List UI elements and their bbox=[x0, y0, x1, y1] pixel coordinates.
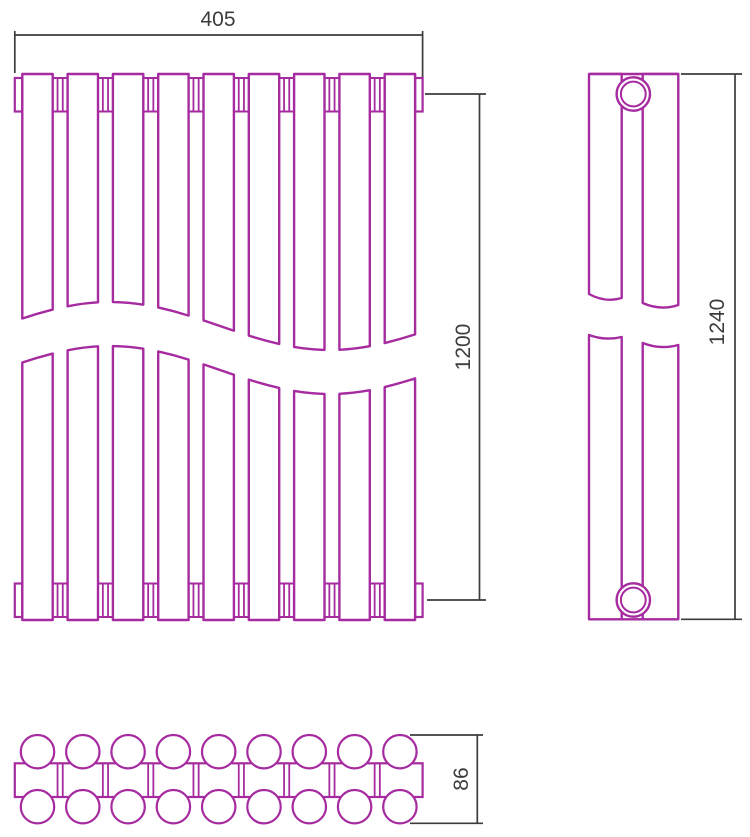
slat-upper bbox=[22, 74, 52, 318]
slat-lower bbox=[339, 390, 369, 620]
tube-section bbox=[247, 790, 280, 823]
slat-upper bbox=[113, 74, 143, 305]
slat-lower bbox=[204, 364, 234, 620]
tube-section bbox=[338, 735, 371, 768]
tube-section bbox=[383, 735, 416, 768]
slat-lower bbox=[249, 380, 279, 620]
slat-upper bbox=[158, 74, 188, 316]
drawing-canvas: 405 1200 1240 86 bbox=[0, 0, 750, 837]
dimension-depth-label: 86 bbox=[450, 767, 473, 790]
tube-section bbox=[111, 790, 144, 823]
slat-lower bbox=[158, 351, 188, 620]
slat-lower bbox=[294, 391, 324, 620]
tube-section bbox=[338, 790, 371, 823]
tube-section bbox=[383, 790, 416, 823]
tube-section bbox=[247, 735, 280, 768]
slat-lower bbox=[68, 346, 98, 620]
slat-upper bbox=[294, 74, 324, 350]
slat-upper bbox=[249, 74, 279, 344]
dimension-axis-height: 1200 bbox=[425, 94, 486, 600]
dimension-width-label: 405 bbox=[200, 8, 235, 31]
slat-upper bbox=[339, 74, 369, 350]
slat-upper bbox=[385, 74, 415, 343]
plan-view bbox=[15, 735, 423, 823]
side-view bbox=[589, 74, 678, 619]
tube-section bbox=[66, 735, 99, 768]
side-slat bbox=[589, 74, 622, 300]
tube-section bbox=[66, 790, 99, 823]
dimension-axis-height-label: 1200 bbox=[452, 324, 475, 371]
tube-section bbox=[21, 790, 54, 823]
tube-section bbox=[202, 790, 235, 823]
tube-section bbox=[293, 735, 326, 768]
tube-section bbox=[157, 735, 190, 768]
side-slat bbox=[643, 74, 679, 308]
technical-drawing: 405 1200 1240 86 bbox=[0, 0, 750, 837]
slat-upper bbox=[204, 74, 234, 331]
tube-section bbox=[111, 735, 144, 768]
tube-section bbox=[293, 790, 326, 823]
tube-section bbox=[157, 790, 190, 823]
dimension-width: 405 bbox=[15, 8, 423, 77]
tube-section bbox=[202, 735, 235, 768]
side-slat bbox=[643, 343, 679, 619]
front-view bbox=[15, 74, 423, 620]
slat-lower bbox=[113, 346, 143, 620]
tube-section bbox=[21, 735, 54, 768]
dimension-overall-height-label: 1240 bbox=[706, 299, 729, 346]
slat-lower bbox=[22, 354, 52, 620]
slat-upper bbox=[68, 74, 98, 306]
slat-lower bbox=[385, 378, 415, 620]
dimension-overall-height: 1240 bbox=[681, 74, 742, 619]
side-slat bbox=[589, 335, 622, 619]
